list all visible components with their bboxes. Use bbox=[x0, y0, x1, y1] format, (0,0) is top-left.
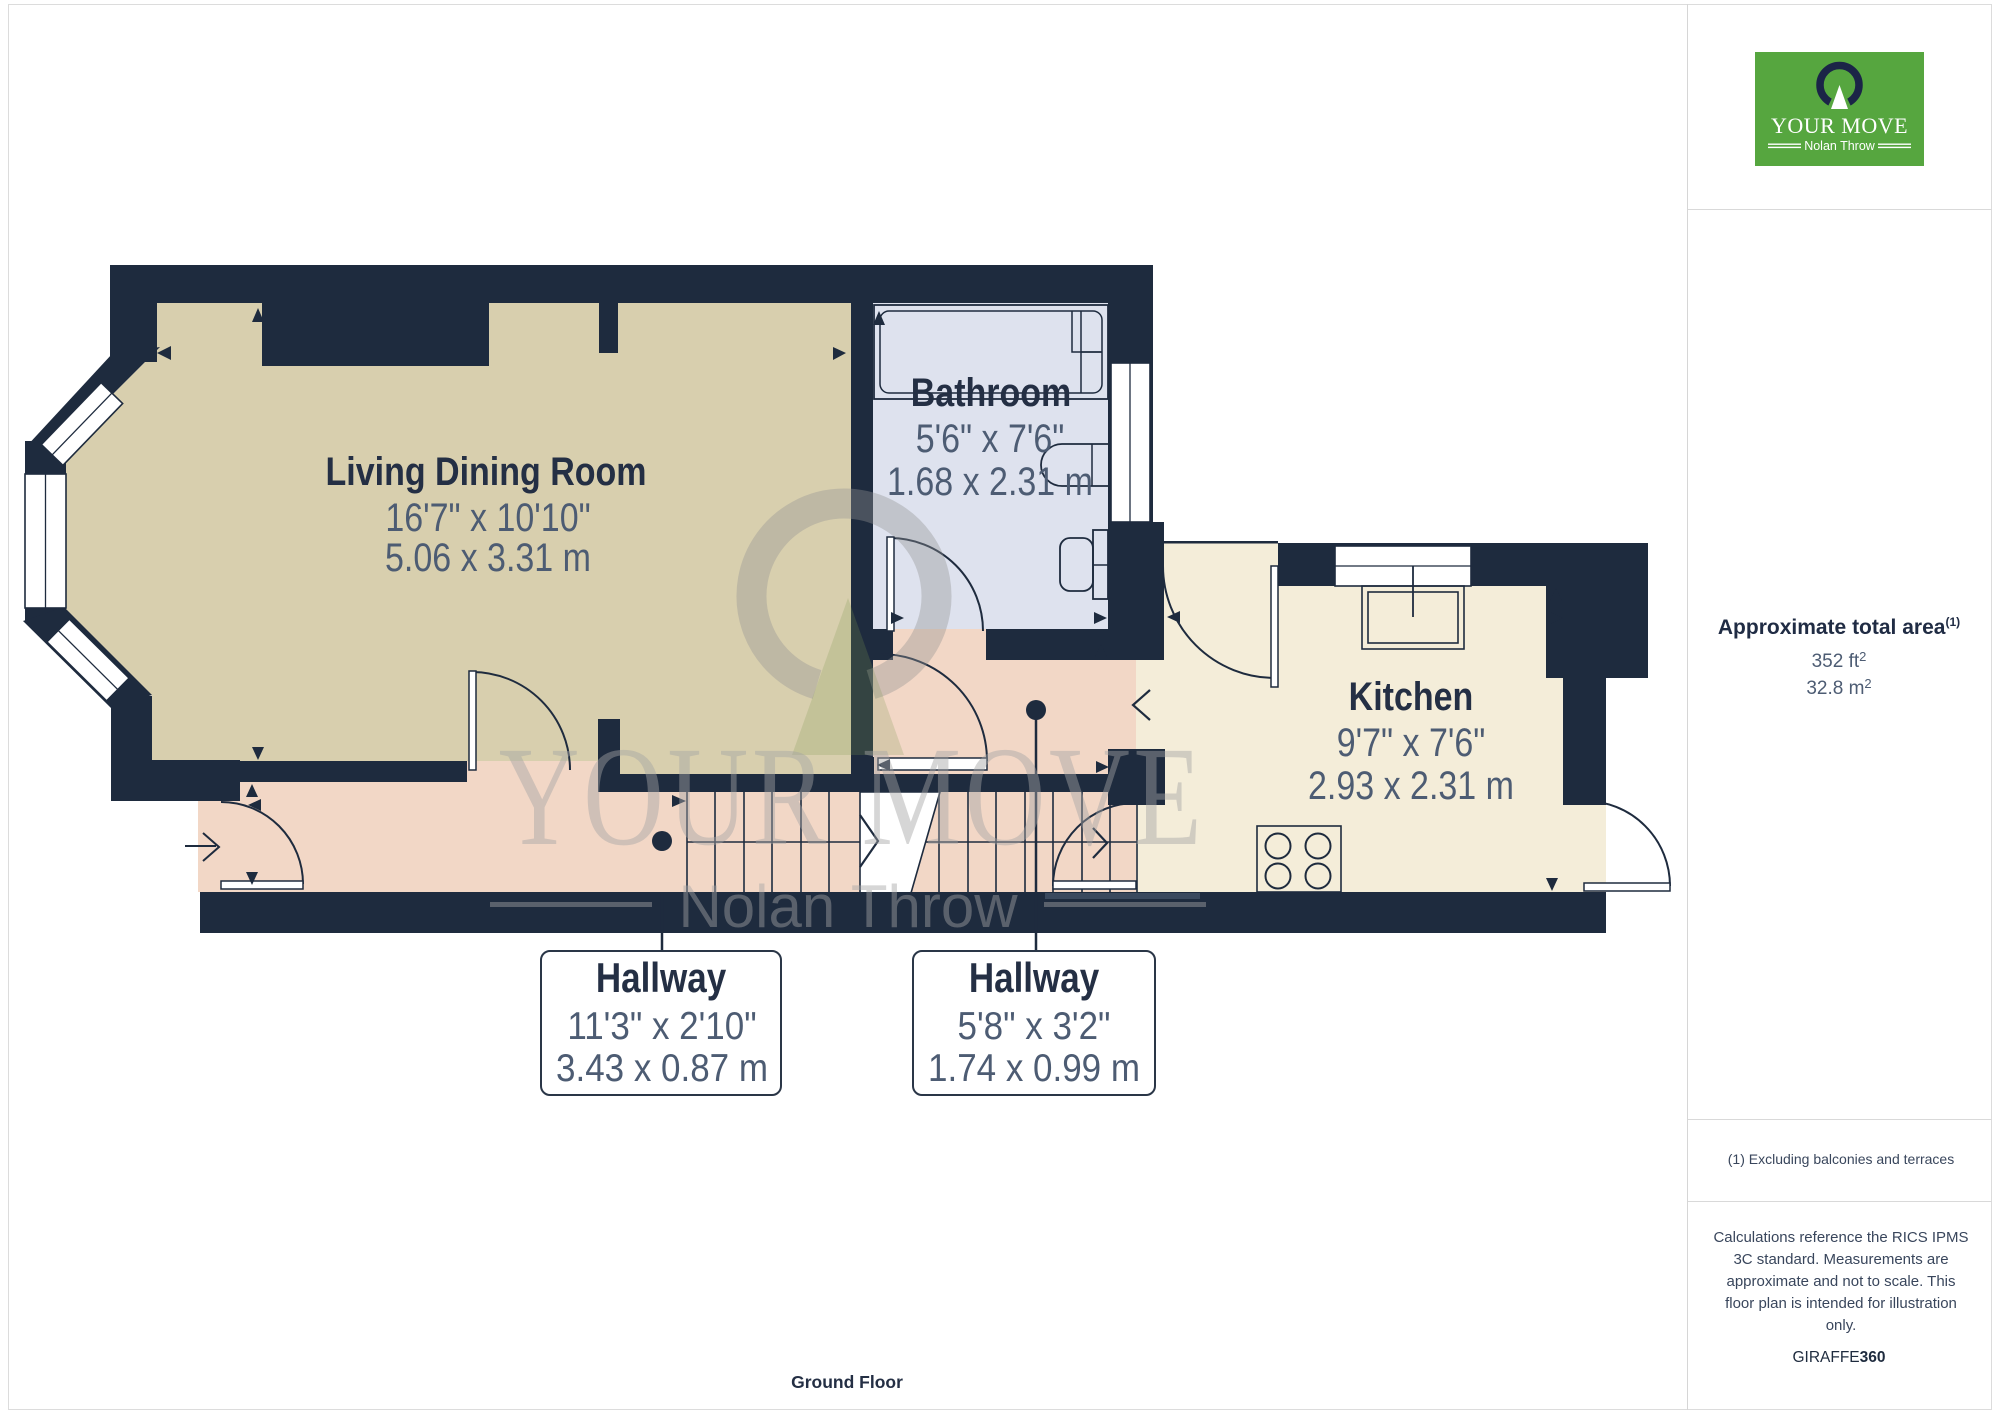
svg-text:Hallway: Hallway bbox=[596, 955, 727, 1001]
svg-text:Kitchen: Kitchen bbox=[1349, 673, 1474, 718]
svg-text:3.43 x 0.87 m: 3.43 x 0.87 m bbox=[556, 1045, 768, 1089]
svg-text:5'6" x 7'6": 5'6" x 7'6" bbox=[916, 417, 1065, 461]
svg-text:1.68 x 2.31 m: 1.68 x 2.31 m bbox=[887, 460, 1093, 504]
svg-text:2.93 x 2.31 m: 2.93 x 2.31 m bbox=[1308, 764, 1514, 808]
svg-text:11'3" x 2'10": 11'3" x 2'10" bbox=[567, 1003, 756, 1047]
svg-text:Bathroom: Bathroom bbox=[911, 369, 1072, 414]
svg-text:5.06 x 3.31 m: 5.06 x 3.31 m bbox=[385, 536, 591, 580]
svg-text:Ground Floor: Ground Floor bbox=[791, 1372, 903, 1392]
svg-text:Living Dining Room: Living Dining Room bbox=[326, 448, 647, 493]
svg-text:1.74 x 0.99 m: 1.74 x 0.99 m bbox=[928, 1045, 1140, 1089]
svg-text:9'7" x 7'6": 9'7" x 7'6" bbox=[1337, 721, 1486, 765]
svg-text:YOUR MOVE: YOUR MOVE bbox=[499, 717, 1206, 875]
svg-text:Hallway: Hallway bbox=[969, 955, 1100, 1001]
svg-text:16'7" x 10'10": 16'7" x 10'10" bbox=[385, 496, 590, 540]
svg-text:5'8" x 3'2": 5'8" x 3'2" bbox=[958, 1003, 1111, 1047]
svg-text:Nolan Throw: Nolan Throw bbox=[678, 873, 1018, 940]
